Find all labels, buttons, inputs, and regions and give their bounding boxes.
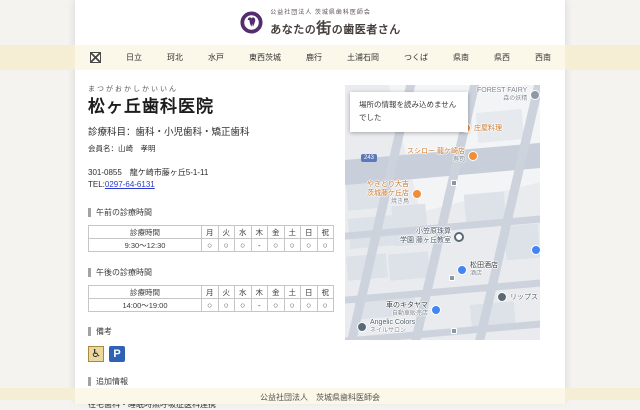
site-title: あなたの街の歯医者さん <box>270 17 401 38</box>
column-header: 日 <box>301 286 318 299</box>
column-header: 火 <box>218 226 235 239</box>
schedule-cell: ○ <box>268 239 285 252</box>
bus-stop-icon <box>451 328 457 334</box>
section-morning-hours: 午前の診療時間 <box>88 207 340 218</box>
poi-angelic-colors: Angelic Colorsネイルサロン <box>357 319 415 335</box>
column-header: 金 <box>268 286 285 299</box>
section-marker <box>88 327 91 336</box>
wheelchair-accessible-icon: ♿ <box>88 346 104 362</box>
poi-matsuda-sakaten: 松田酒店酒店 <box>457 262 498 278</box>
clinic-member-name: 会員名：山崎 孝明 <box>88 143 340 154</box>
poi-generic-icon <box>357 322 367 332</box>
poi-forest-fairy: FOREST FAIRY森の妖精 <box>477 87 540 103</box>
broken-image-icon[interactable] <box>90 52 101 63</box>
poi-edge-store <box>531 245 540 255</box>
bus-stop-icon <box>449 275 455 281</box>
section-remarks: 備考 <box>88 326 340 337</box>
region-nav-bar: 日立 珂北 水戸 東西茨城 鹿行 土浦石岡 つくば 県南 県西 西南 <box>0 45 640 70</box>
column-header: 木 <box>251 286 268 299</box>
section-additional-info: 追加情報 <box>88 376 340 387</box>
section-afternoon-hours: 午後の診療時間 <box>88 267 340 278</box>
nav-item-mito[interactable]: 水戸 <box>208 52 224 63</box>
poi-store-icon <box>457 265 467 275</box>
bus-stop-icon <box>451 180 457 186</box>
map-error-popup: 場所の情報を読み込めません でした <box>350 92 468 132</box>
nav-item-hitachi[interactable]: 日立 <box>126 52 142 63</box>
schedule-cell: ○ <box>301 299 318 312</box>
column-header: 土 <box>284 226 301 239</box>
nav-item-rokko[interactable]: 鹿行 <box>306 52 322 63</box>
poi-yakitori-daikichi: やきとり大吉 茨城藤ケ丘店焼き鳥 <box>367 181 422 206</box>
brand-block[interactable]: 公益社団法人 茨城県歯科医師会 あなたの街の歯医者さん <box>270 7 401 38</box>
site-header: 公益社団法人 茨城県歯科医師会 あなたの街の歯医者さん <box>75 0 565 45</box>
main-content: まつがおかしかいいん 松ヶ丘歯科医院 診療科目：歯科・小児歯科・矯正歯科 会員名… <box>75 70 565 400</box>
poi-generic-icon <box>497 292 507 302</box>
section-marker <box>88 208 91 217</box>
column-header: 火 <box>218 286 235 299</box>
column-header: 祝 <box>317 226 334 239</box>
poi-lips: リップス <box>497 292 538 302</box>
schedule-cell: ○ <box>317 239 334 252</box>
clinic-address: 301-0855 龍ケ崎市藤ヶ丘5-1-11 <box>88 167 340 180</box>
schedule-cell: ○ <box>235 239 252 252</box>
poi-store-icon <box>531 245 540 255</box>
schedule-cell: - <box>251 239 268 252</box>
nav-item-tsukuba[interactable]: つくば <box>404 52 428 63</box>
schedule-cell: ○ <box>202 239 219 252</box>
tel-label: TEL: <box>88 180 105 189</box>
column-header: 祝 <box>317 286 334 299</box>
clinic-tel-line: TEL:0297-64-6131 <box>88 179 340 192</box>
clinic-name-heading: 松ヶ丘歯科医院 <box>88 97 340 117</box>
column-header: 土 <box>284 286 301 299</box>
nav-item-tozai-ibaraki[interactable]: 東西茨城 <box>249 52 281 63</box>
afternoon-schedule-table: 診療時間 月 火 水 木 金 土 日 祝 14:00～19:00 ○ ○ ○ -… <box>88 285 334 312</box>
table-header-row: 診療時間 月 火 水 木 金 土 日 祝 <box>89 226 334 239</box>
table-header-row: 診療時間 月 火 水 木 金 土 日 祝 <box>89 286 334 299</box>
facility-feature-icons: ♿ P <box>88 346 340 362</box>
table-row: 14:00～19:00 ○ ○ ○ - ○ ○ ○ ○ <box>89 299 334 312</box>
table-row: 9:30～12:30 ○ ○ ○ - ○ ○ ○ ○ <box>89 239 334 252</box>
column-header: 木 <box>251 226 268 239</box>
parking-icon: P <box>109 346 125 362</box>
column-header: 金 <box>268 226 285 239</box>
column-header: 月 <box>202 286 219 299</box>
schedule-cell: ○ <box>301 239 318 252</box>
time-range-cell: 9:30～12:30 <box>89 239 202 252</box>
schedule-cell: ○ <box>202 299 219 312</box>
column-header: 月 <box>202 226 219 239</box>
poi-kitayama: 車のキタヤマ自動車販売店 <box>386 302 441 318</box>
poi-restaurant-icon <box>412 189 422 199</box>
column-header: 水 <box>235 286 252 299</box>
schedule-cell: ○ <box>268 299 285 312</box>
poi-store-icon <box>431 305 441 315</box>
schedule-cell: - <box>251 299 268 312</box>
poi-school-icon <box>454 232 464 242</box>
clinic-address-block: 301-0855 龍ケ崎市藤ヶ丘5-1-11 TEL:0297-64-6131 <box>88 167 340 193</box>
tel-link[interactable]: 0297-64-6131 <box>105 180 155 189</box>
schedule-cell: ○ <box>218 239 235 252</box>
clinic-detail-panel: まつがおかしかいいん 松ヶ丘歯科医院 診療科目：歯科・小児歯科・矯正歯科 会員名… <box>88 84 340 410</box>
schedule-cell: ○ <box>284 239 301 252</box>
poi-generic-icon <box>530 90 540 100</box>
schedule-cell: ○ <box>218 299 235 312</box>
location-map[interactable]: 243 FOREST FAIRY森の妖精 庄屋料理 スシロー 龍ケ崎店寿司 やき… <box>345 85 540 340</box>
schedule-cell: ○ <box>284 299 301 312</box>
column-header: 診療時間 <box>89 226 202 239</box>
region-nav-inner: 日立 珂北 水戸 東西茨城 鹿行 土浦石岡 つくば 県南 県西 西南 <box>75 45 565 70</box>
nav-item-seinan[interactable]: 西南 <box>535 52 551 63</box>
nav-item-kennan[interactable]: 県南 <box>453 52 469 63</box>
poi-restaurant-icon <box>468 151 478 161</box>
column-header: 診療時間 <box>89 286 202 299</box>
footer-association-name: 公益社団法人 茨城県歯科医師会 <box>75 388 565 404</box>
poi-sushiro: スシロー 龍ケ崎店寿司 <box>407 148 478 164</box>
schedule-cell: ○ <box>235 299 252 312</box>
section-marker <box>88 377 91 386</box>
association-logo-icon[interactable] <box>239 10 264 35</box>
nav-item-kensei[interactable]: 県西 <box>494 52 510 63</box>
clinic-departments: 診療科目：歯科・小児歯科・矯正歯科 <box>88 124 340 138</box>
column-header: 日 <box>301 226 318 239</box>
clinic-name-kana: まつがおかしかいいん <box>88 84 340 94</box>
poi-ogasawara-school: 小笠原珠算 学園 藤ヶ丘教室 <box>400 228 464 246</box>
section-marker <box>88 268 91 277</box>
nav-item-kahoku[interactable]: 珂北 <box>167 52 183 63</box>
footer: 公益社団法人 茨城県歯科医師会 <box>0 388 640 400</box>
morning-schedule-table: 診療時間 月 火 水 木 金 土 日 祝 9:30～12:30 ○ ○ ○ - … <box>88 225 334 252</box>
schedule-cell: ○ <box>317 299 334 312</box>
route-shield-badge: 243 <box>361 154 377 162</box>
time-range-cell: 14:00～19:00 <box>89 299 202 312</box>
nav-item-tsuchiura-ishioka[interactable]: 土浦石岡 <box>347 52 379 63</box>
column-header: 水 <box>235 226 252 239</box>
association-name: 公益社団法人 茨城県歯科医師会 <box>270 7 401 16</box>
